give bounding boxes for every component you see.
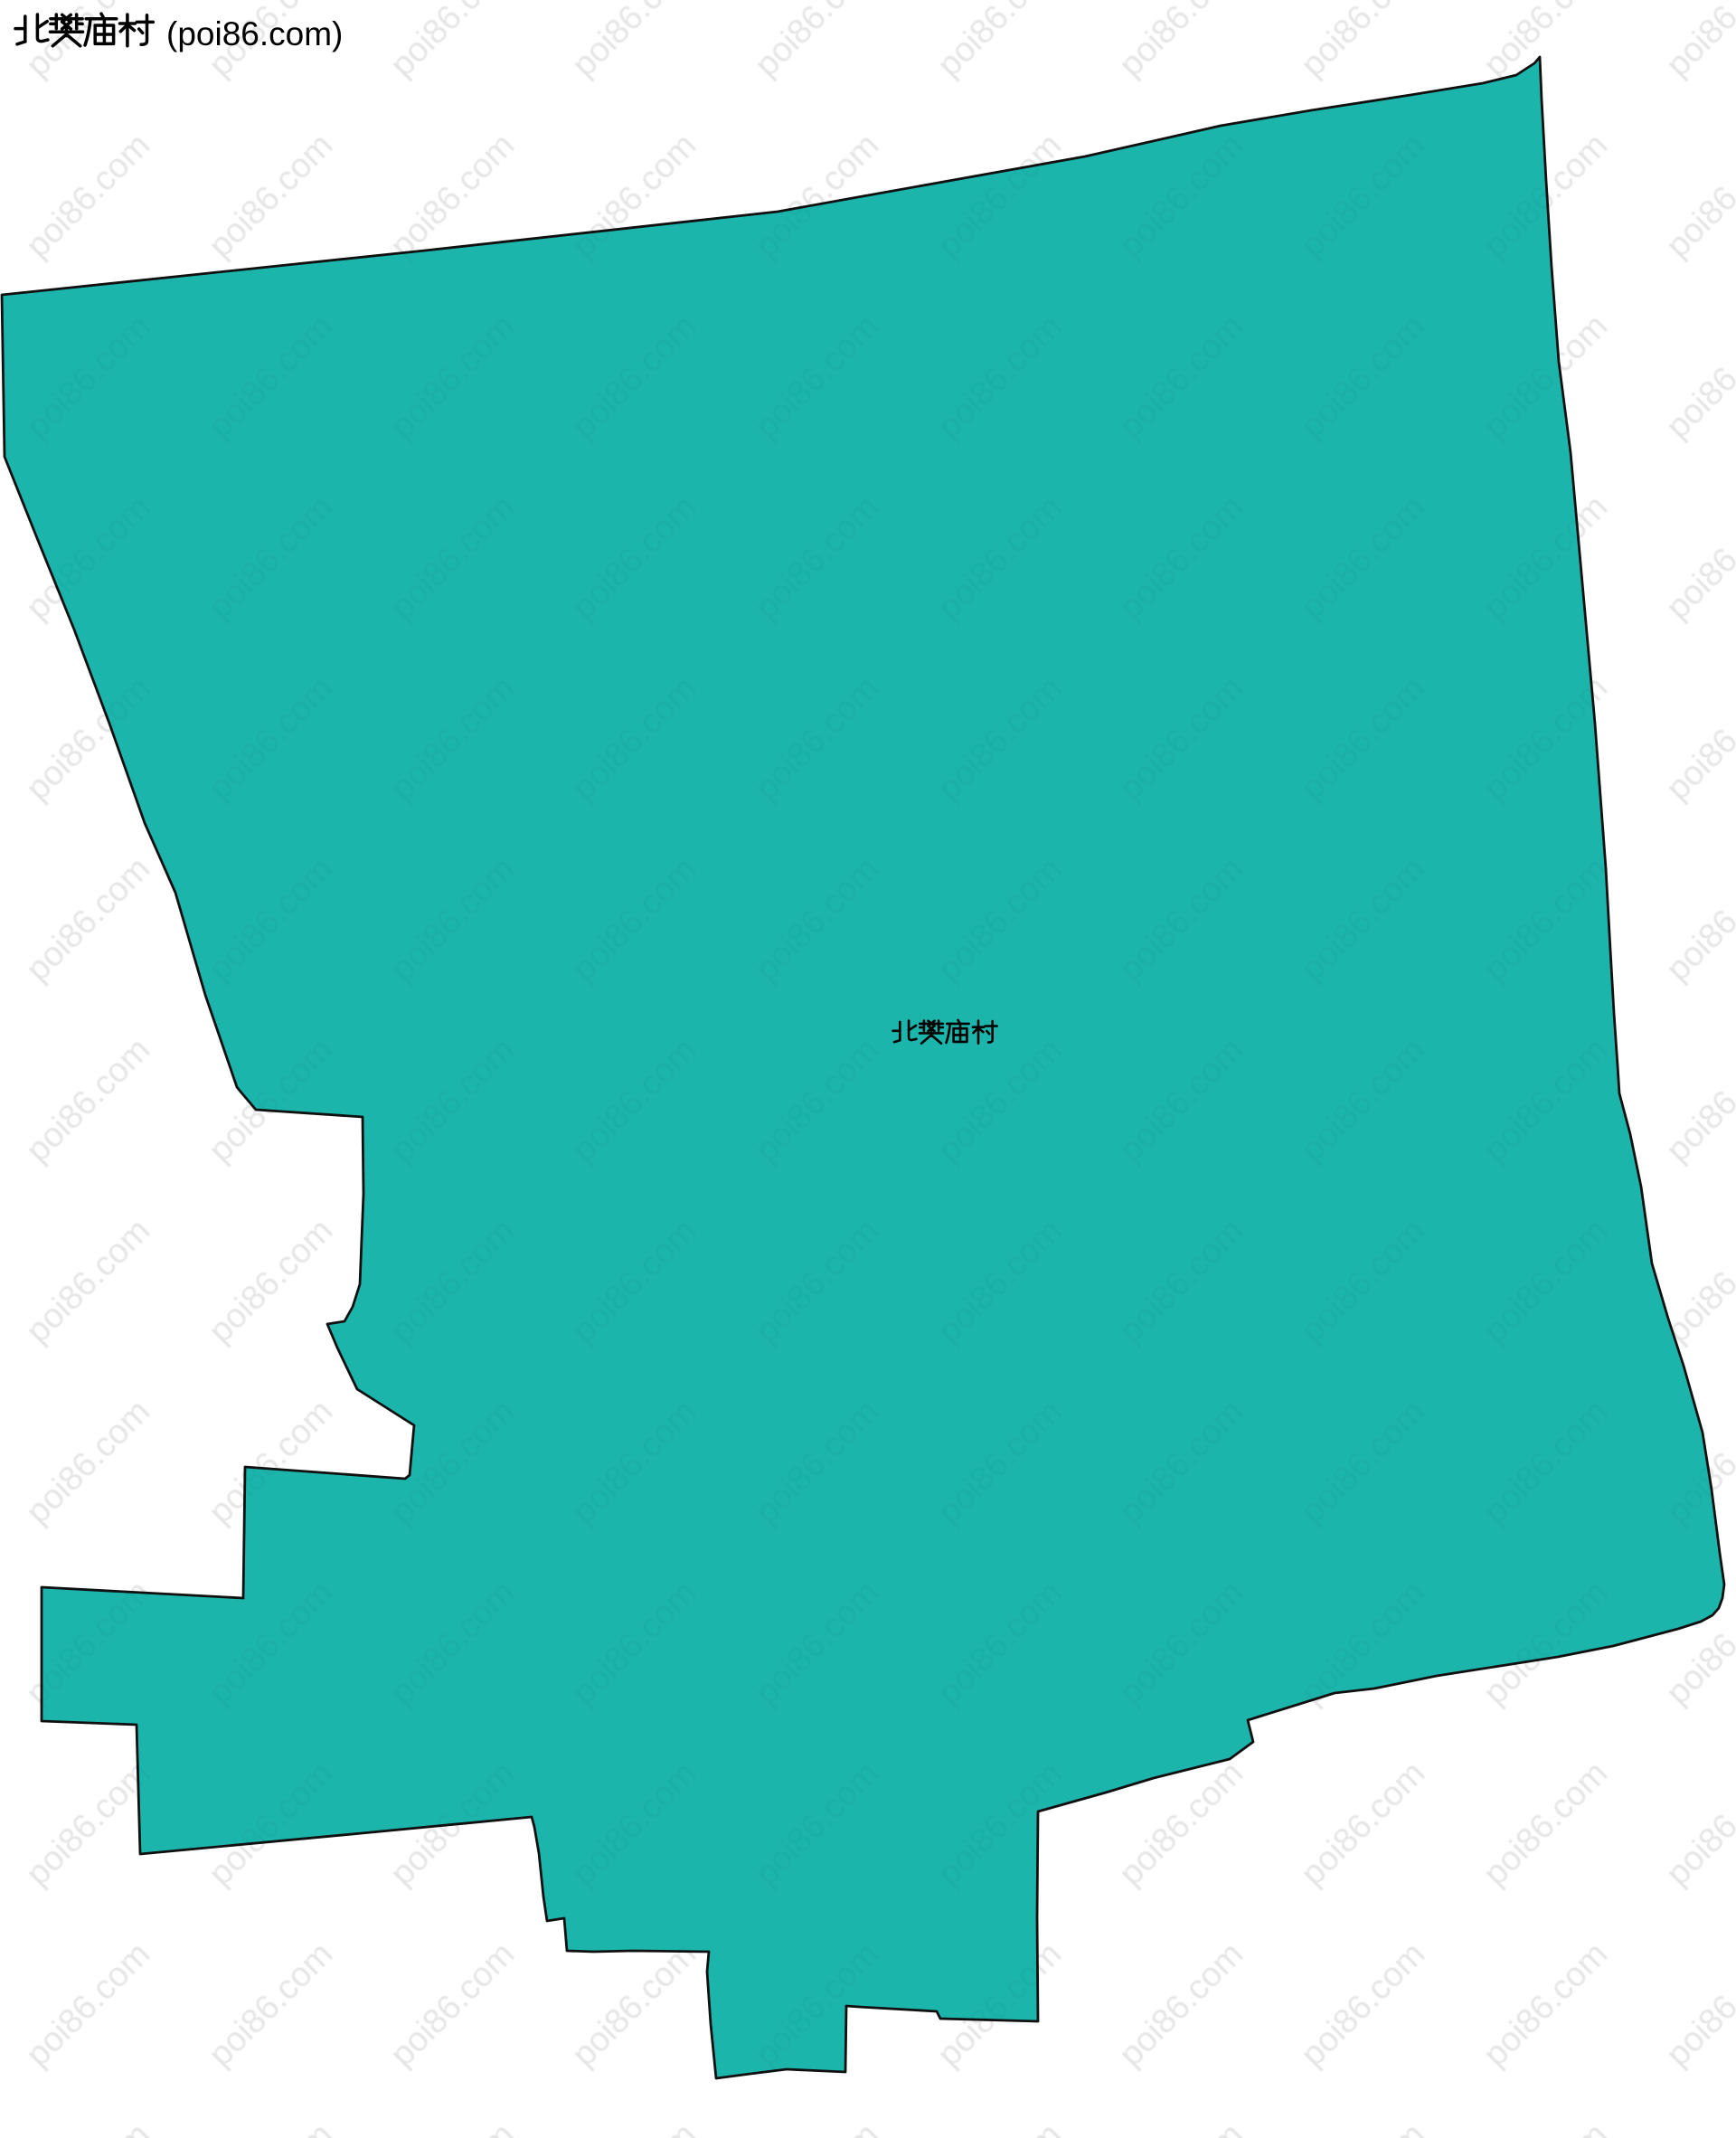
svg-text:(poi86.com): (poi86.com) (166, 15, 343, 52)
